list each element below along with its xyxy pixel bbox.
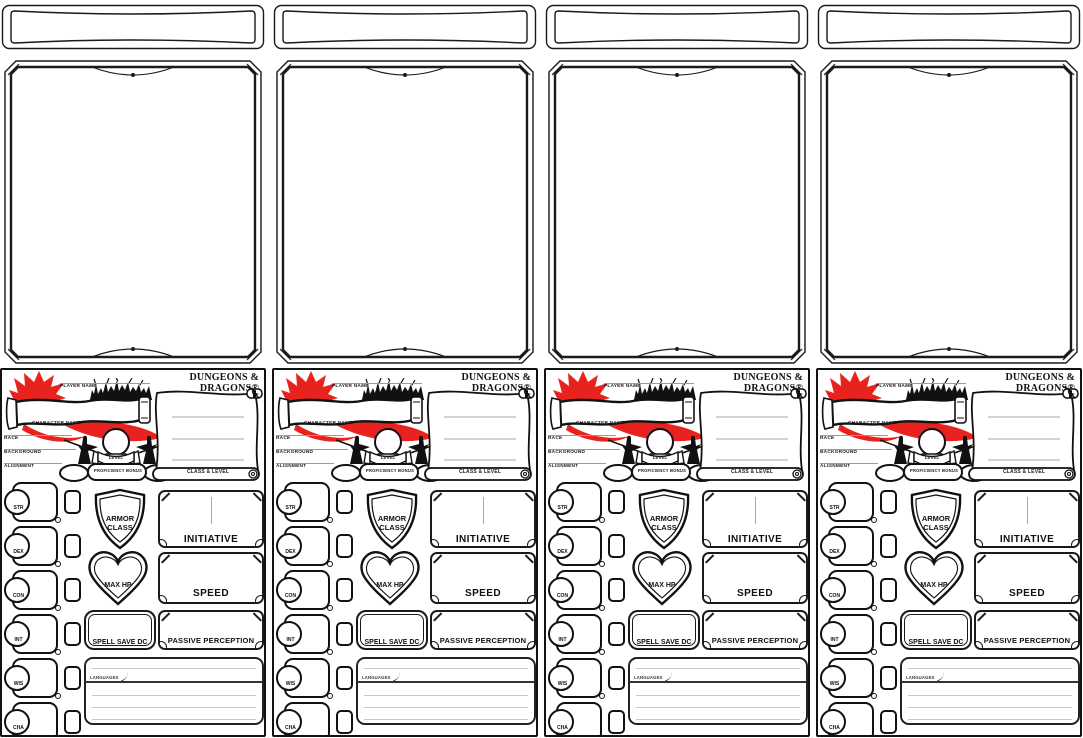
ability-circle bbox=[548, 665, 574, 691]
ability-modifier-box[interactable] bbox=[336, 710, 353, 734]
write-line bbox=[908, 719, 1072, 720]
ability-modifier-box[interactable] bbox=[880, 666, 897, 690]
level-label: LEVEL bbox=[914, 456, 950, 460]
class-level-label: CLASS & LEVEL bbox=[442, 470, 518, 475]
ability-modifier-box[interactable] bbox=[336, 490, 353, 514]
ability-block-con[interactable]: CON bbox=[548, 568, 630, 614]
max-hp-heart-icon[interactable] bbox=[630, 550, 694, 608]
ability-circle bbox=[276, 621, 302, 647]
ability-block-con[interactable]: CON bbox=[820, 568, 902, 614]
proficiency-bonus-label: PROFICIENCY BONUS bbox=[633, 469, 691, 473]
ability-connector-dot bbox=[327, 561, 333, 567]
ability-modifier-box[interactable] bbox=[64, 622, 81, 646]
ability-label: CON bbox=[276, 593, 305, 599]
ability-circle bbox=[276, 577, 302, 603]
level-label: LEVEL bbox=[98, 456, 134, 460]
ability-block-con[interactable]: CON bbox=[276, 568, 358, 614]
ability-circle bbox=[548, 621, 574, 647]
ability-connector-dot bbox=[55, 517, 61, 523]
ability-label: WIS bbox=[820, 681, 849, 687]
languages-box[interactable]: LANGUAGES bbox=[900, 657, 1080, 725]
ability-modifier-box[interactable] bbox=[608, 622, 625, 646]
passive-perception-label: PASSIVE PERCEPTION bbox=[702, 636, 808, 645]
ability-modifier-box[interactable] bbox=[64, 490, 81, 514]
initiative-divider bbox=[755, 497, 756, 524]
write-line bbox=[92, 668, 256, 669]
ability-circle bbox=[276, 533, 302, 559]
ability-connector-dot bbox=[55, 605, 61, 611]
portrait-frame[interactable] bbox=[2, 58, 264, 366]
ability-block-dex[interactable]: DEX bbox=[276, 524, 358, 570]
class-level-scroll-icon[interactable] bbox=[966, 384, 1082, 482]
ability-modifier-box[interactable] bbox=[880, 490, 897, 514]
ability-connector-dot bbox=[599, 605, 605, 611]
class-level-scroll-icon[interactable] bbox=[694, 384, 810, 482]
ability-label: INT bbox=[276, 637, 305, 643]
ability-circle bbox=[276, 489, 302, 515]
character-card: DUNGEONS & DRAGONS® PLAYER NAME bbox=[544, 0, 811, 738]
player-name-label: PLAYER NAME bbox=[604, 385, 641, 390]
name-plaque-frame-icon bbox=[817, 4, 1081, 50]
write-line bbox=[908, 707, 1072, 708]
ability-block-dex[interactable]: DEX bbox=[820, 524, 902, 570]
ability-modifier-box[interactable] bbox=[608, 578, 625, 602]
ability-circle bbox=[820, 665, 846, 691]
ability-modifier-box[interactable] bbox=[608, 490, 625, 514]
ability-circle bbox=[4, 489, 30, 515]
ability-label: DEX bbox=[276, 549, 305, 555]
portrait-frame[interactable] bbox=[274, 58, 536, 366]
max-hp-label: MAX HP bbox=[104, 582, 132, 590]
ability-label: INT bbox=[548, 637, 577, 643]
passive-perception-label: PASSIVE PERCEPTION bbox=[158, 636, 264, 645]
ability-circle bbox=[276, 665, 302, 691]
alignment-label: ALIGNMENT bbox=[820, 465, 850, 470]
armor-class-label: ARMOR CLASS bbox=[647, 514, 681, 532]
ability-connector-dot bbox=[327, 517, 333, 523]
spell-save-dc-label: SPELL SAVE DC bbox=[356, 639, 428, 646]
ability-connector-dot bbox=[327, 693, 333, 699]
languages-label: LANGUAGES bbox=[362, 675, 393, 681]
ability-circle bbox=[548, 533, 574, 559]
max-hp-label: MAX HP bbox=[648, 582, 676, 590]
ability-modifier-box[interactable] bbox=[608, 534, 625, 558]
character-card: DUNGEONS & DRAGONS® PLAYER NAME bbox=[272, 0, 539, 738]
race-label: RACE bbox=[820, 437, 834, 442]
ability-label: STR bbox=[548, 505, 577, 511]
write-line bbox=[364, 719, 528, 720]
max-hp-heart-icon[interactable] bbox=[902, 550, 966, 608]
languages-label: LANGUAGES bbox=[634, 675, 665, 681]
ability-connector-dot bbox=[55, 649, 61, 655]
ability-connector-dot bbox=[55, 561, 61, 567]
ability-modifier-box[interactable] bbox=[64, 534, 81, 558]
ability-modifier-box[interactable] bbox=[336, 578, 353, 602]
portrait-frame[interactable] bbox=[818, 58, 1080, 366]
ability-label: STR bbox=[276, 505, 305, 511]
ability-block-str[interactable]: STR bbox=[548, 480, 630, 526]
ability-label: DEX bbox=[4, 549, 33, 555]
name-plaque[interactable] bbox=[273, 4, 537, 50]
write-line bbox=[636, 707, 800, 708]
alignment-label: ALIGNMENT bbox=[4, 465, 34, 470]
write-line bbox=[908, 695, 1072, 696]
level-label: LEVEL bbox=[642, 456, 678, 460]
card-sheet-page: DUNGEONS & DRAGONS® PLAYER NAME bbox=[0, 0, 1083, 738]
write-line bbox=[364, 695, 528, 696]
race-label: RACE bbox=[548, 437, 562, 442]
character-card: DUNGEONS & DRAGONS® PLAYER NAME bbox=[816, 0, 1083, 738]
ability-circle bbox=[820, 489, 846, 515]
write-line bbox=[92, 707, 256, 708]
ability-label: WIS bbox=[276, 681, 305, 687]
write-line bbox=[92, 695, 256, 696]
ability-modifier-box[interactable] bbox=[608, 710, 625, 734]
ability-label: WIS bbox=[4, 681, 33, 687]
character-sheet: DUNGEONS & DRAGONS® PLAYER NAME bbox=[272, 368, 538, 737]
ability-modifier-box[interactable] bbox=[64, 710, 81, 734]
ability-circle bbox=[820, 533, 846, 559]
ability-connector-dot bbox=[871, 649, 877, 655]
class-level-label: CLASS & LEVEL bbox=[170, 470, 246, 475]
portrait-frame-border-icon bbox=[546, 58, 808, 366]
ability-modifier-box[interactable] bbox=[336, 534, 353, 558]
ability-label: STR bbox=[4, 505, 33, 511]
speed-label: SPEED bbox=[974, 588, 1080, 599]
ability-circle bbox=[4, 709, 30, 735]
ability-modifier-box[interactable] bbox=[880, 534, 897, 558]
ability-modifier-box[interactable] bbox=[880, 710, 897, 734]
portrait-frame-border-icon bbox=[818, 58, 1080, 366]
ability-block-wis[interactable]: WIS bbox=[820, 656, 902, 702]
class-level-scroll-icon[interactable] bbox=[422, 384, 538, 482]
write-line bbox=[364, 668, 528, 669]
ability-modifier-box[interactable] bbox=[64, 666, 81, 690]
ability-block-int[interactable]: INT bbox=[548, 612, 630, 658]
armor-class-label: ARMOR CLASS bbox=[103, 514, 137, 532]
ability-block-cha[interactable]: CHA bbox=[276, 700, 358, 737]
ability-label: DEX bbox=[820, 549, 849, 555]
ability-connector-dot bbox=[599, 561, 605, 567]
languages-box[interactable]: LANGUAGES bbox=[628, 657, 808, 725]
ability-connector-dot bbox=[327, 649, 333, 655]
ability-connector-dot bbox=[599, 517, 605, 523]
ability-label: INT bbox=[820, 637, 849, 643]
ability-label: CHA bbox=[4, 725, 33, 731]
languages-box[interactable]: LANGUAGES bbox=[84, 657, 264, 725]
name-plaque-frame-icon bbox=[1, 4, 265, 50]
initiative-label: INITIATIVE bbox=[158, 534, 264, 545]
race-label: RACE bbox=[276, 437, 290, 442]
ability-block-int[interactable]: INT bbox=[820, 612, 902, 658]
character-sheet: DUNGEONS & DRAGONS® PLAYER NAME bbox=[0, 368, 266, 737]
ability-block-wis[interactable]: WIS bbox=[4, 656, 86, 702]
initiative-label: INITIATIVE bbox=[702, 534, 808, 545]
background-label: BACKGROUND bbox=[820, 451, 857, 456]
spell-save-dc-label: SPELL SAVE DC bbox=[628, 639, 700, 646]
ability-connector-dot bbox=[871, 693, 877, 699]
ability-connector-dot bbox=[871, 517, 877, 523]
ability-circle bbox=[276, 709, 302, 735]
ability-connector-dot bbox=[327, 605, 333, 611]
background-label: BACKGROUND bbox=[548, 451, 585, 456]
speed-label: SPEED bbox=[430, 588, 536, 599]
ability-block-int[interactable]: INT bbox=[4, 612, 86, 658]
write-line bbox=[636, 695, 800, 696]
ability-modifier-box[interactable] bbox=[64, 578, 81, 602]
ability-circle bbox=[4, 621, 30, 647]
proficiency-bonus-label: PROFICIENCY BONUS bbox=[361, 469, 419, 473]
ability-block-con[interactable]: CON bbox=[4, 568, 86, 614]
ability-block-dex[interactable]: DEX bbox=[4, 524, 86, 570]
ability-block-wis[interactable]: WIS bbox=[276, 656, 358, 702]
proficiency-bonus-label: PROFICIENCY BONUS bbox=[905, 469, 963, 473]
ability-label: DEX bbox=[548, 549, 577, 555]
ability-circle bbox=[548, 709, 574, 735]
class-level-label: CLASS & LEVEL bbox=[714, 470, 790, 475]
spell-save-dc-label: SPELL SAVE DC bbox=[84, 639, 156, 646]
passive-perception-label: PASSIVE PERCEPTION bbox=[430, 636, 536, 645]
ability-connector-dot bbox=[55, 693, 61, 699]
write-line bbox=[636, 719, 800, 720]
ability-label: CHA bbox=[276, 725, 305, 731]
ability-modifier-box[interactable] bbox=[608, 666, 625, 690]
languages-label: LANGUAGES bbox=[90, 675, 121, 681]
player-name-label: PLAYER NAME bbox=[332, 385, 369, 390]
ability-circle bbox=[820, 577, 846, 603]
ability-modifier-box[interactable] bbox=[336, 622, 353, 646]
armor-class-label: ARMOR CLASS bbox=[375, 514, 409, 532]
max-hp-heart-icon[interactable] bbox=[86, 550, 150, 608]
ability-circle bbox=[548, 577, 574, 603]
name-plaque-frame-icon bbox=[545, 4, 809, 50]
ability-modifier-box[interactable] bbox=[880, 622, 897, 646]
speed-label: SPEED bbox=[158, 588, 264, 599]
name-plaque[interactable] bbox=[545, 4, 809, 50]
initiative-divider bbox=[211, 497, 212, 524]
write-line bbox=[636, 668, 800, 669]
initiative-label: INITIATIVE bbox=[974, 534, 1080, 545]
name-plaque[interactable] bbox=[1, 4, 265, 50]
name-plaque-frame-icon bbox=[273, 4, 537, 50]
ability-block-cha[interactable]: CHA bbox=[4, 700, 86, 737]
ability-label: CON bbox=[820, 593, 849, 599]
spell-save-dc-label: SPELL SAVE DC bbox=[900, 639, 972, 646]
portrait-frame-border-icon bbox=[2, 58, 264, 366]
character-sheet: DUNGEONS & DRAGONS® PLAYER NAME bbox=[816, 368, 1082, 737]
ability-connector-dot bbox=[871, 605, 877, 611]
ability-modifier-box[interactable] bbox=[336, 666, 353, 690]
character-card: DUNGEONS & DRAGONS® PLAYER NAME bbox=[0, 0, 267, 738]
proficiency-bonus-label: PROFICIENCY BONUS bbox=[89, 469, 147, 473]
ability-circle bbox=[820, 709, 846, 735]
initiative-label: INITIATIVE bbox=[430, 534, 536, 545]
ability-block-str[interactable]: STR bbox=[4, 480, 86, 526]
ability-label: CON bbox=[548, 593, 577, 599]
race-label: RACE bbox=[4, 437, 18, 442]
level-label: LEVEL bbox=[370, 456, 406, 460]
ability-label: WIS bbox=[548, 681, 577, 687]
player-name-label: PLAYER NAME bbox=[876, 385, 913, 390]
languages-box[interactable]: LANGUAGES bbox=[356, 657, 536, 725]
speed-label: SPEED bbox=[702, 588, 808, 599]
background-label: BACKGROUND bbox=[276, 451, 313, 456]
portrait-frame[interactable] bbox=[546, 58, 808, 366]
ability-label: CHA bbox=[548, 725, 577, 731]
ability-block-cha[interactable]: CHA bbox=[548, 700, 630, 737]
write-line bbox=[92, 719, 256, 720]
ability-label: INT bbox=[4, 637, 33, 643]
portrait-frame-border-icon bbox=[274, 58, 536, 366]
alignment-label: ALIGNMENT bbox=[276, 465, 306, 470]
ability-circle bbox=[4, 533, 30, 559]
class-level-scroll-icon[interactable] bbox=[150, 384, 266, 482]
character-sheet: DUNGEONS & DRAGONS® PLAYER NAME bbox=[544, 368, 810, 737]
passive-perception-label: PASSIVE PERCEPTION bbox=[974, 636, 1080, 645]
alignment-label: ALIGNMENT bbox=[548, 465, 578, 470]
player-name-label: PLAYER NAME bbox=[60, 385, 97, 390]
ability-connector-dot bbox=[599, 649, 605, 655]
ability-block-int[interactable]: INT bbox=[276, 612, 358, 658]
class-level-label: CLASS & LEVEL bbox=[986, 470, 1062, 475]
ability-label: CON bbox=[4, 593, 33, 599]
max-hp-label: MAX HP bbox=[920, 582, 948, 590]
ability-circle bbox=[548, 489, 574, 515]
initiative-divider bbox=[483, 497, 484, 524]
ability-circle bbox=[4, 665, 30, 691]
max-hp-heart-icon[interactable] bbox=[358, 550, 422, 608]
max-hp-label: MAX HP bbox=[376, 582, 404, 590]
ability-circle bbox=[4, 577, 30, 603]
write-line bbox=[364, 707, 528, 708]
write-line bbox=[908, 668, 1072, 669]
ability-block-cha[interactable]: CHA bbox=[820, 700, 902, 737]
armor-class-label: ARMOR CLASS bbox=[919, 514, 953, 532]
ability-block-wis[interactable]: WIS bbox=[548, 656, 630, 702]
ability-modifier-box[interactable] bbox=[880, 578, 897, 602]
background-label: BACKGROUND bbox=[4, 451, 41, 456]
ability-connector-dot bbox=[871, 561, 877, 567]
name-plaque[interactable] bbox=[817, 4, 1081, 50]
ability-circle bbox=[820, 621, 846, 647]
ability-block-str[interactable]: STR bbox=[820, 480, 902, 526]
ability-label: CHA bbox=[820, 725, 849, 731]
ability-block-dex[interactable]: DEX bbox=[548, 524, 630, 570]
ability-connector-dot bbox=[599, 693, 605, 699]
languages-label: LANGUAGES bbox=[906, 675, 937, 681]
ability-block-str[interactable]: STR bbox=[276, 480, 358, 526]
initiative-divider bbox=[1027, 497, 1028, 524]
ability-label: STR bbox=[820, 505, 849, 511]
